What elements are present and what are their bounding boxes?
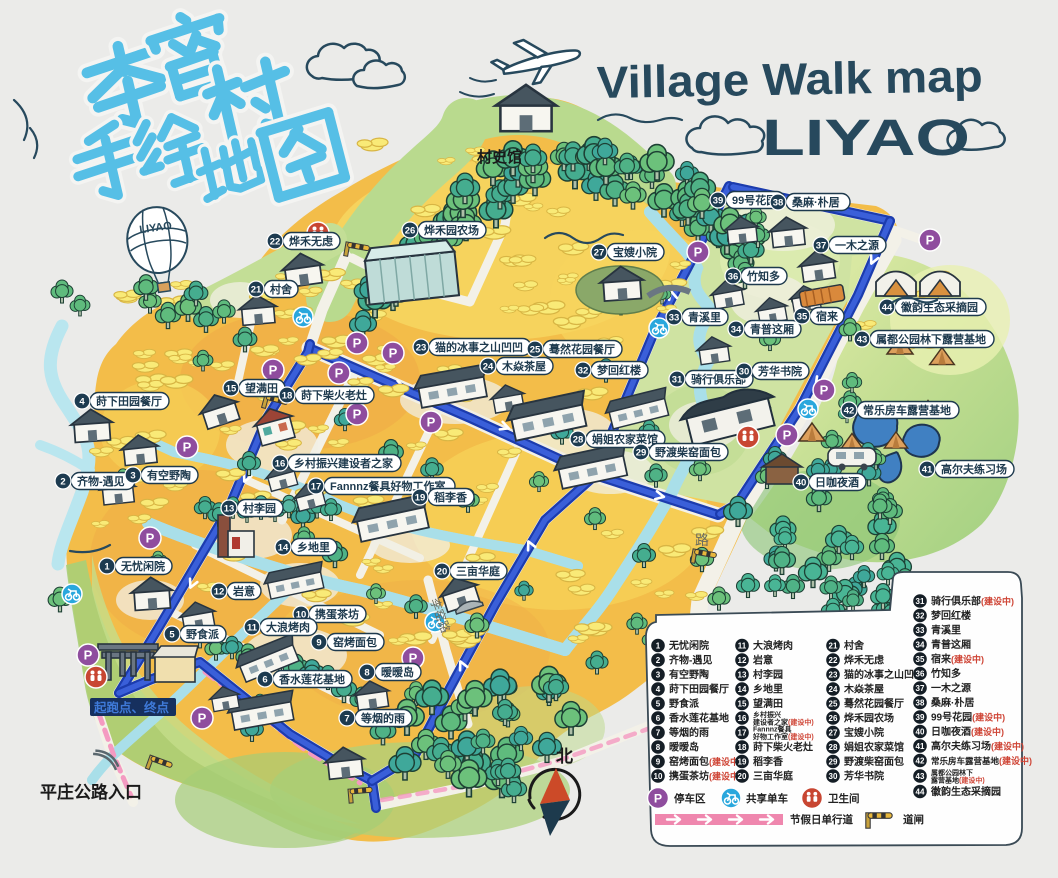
svg-text:三亩华庭: 三亩华庭 [753, 770, 794, 783]
svg-text:7: 7 [344, 714, 349, 725]
svg-text:40: 40 [916, 727, 925, 736]
svg-text:宝嫂小院: 宝嫂小院 [844, 726, 884, 739]
svg-text:6: 6 [262, 675, 267, 686]
svg-text:16: 16 [738, 714, 747, 723]
svg-text:14: 14 [278, 543, 289, 554]
svg-text:携蛋茶坊(建设中): 携蛋茶坊(建设中) [669, 770, 742, 783]
svg-text:岩意: 岩意 [232, 584, 255, 598]
svg-text:卫生间: 卫生间 [828, 792, 860, 805]
svg-text:Fannnz餐具好物工作室: Fannnz餐具好物工作室 [330, 479, 446, 493]
svg-text:99号花园(建设中): 99号花园(建设中) [931, 711, 1005, 724]
svg-text:竹知多: 竹知多 [930, 667, 961, 680]
svg-text:骑行俱乐部(建设中): 骑行俱乐部(建设中) [931, 595, 1014, 608]
svg-text:岩意: 岩意 [752, 654, 773, 667]
svg-text:17: 17 [738, 728, 747, 737]
svg-text:等烟的雨: 等烟的雨 [669, 726, 709, 739]
svg-text:30: 30 [829, 772, 838, 781]
svg-text:徽韵生态采摘园: 徽韵生态采摘园 [930, 785, 1001, 798]
svg-text:桑麻·朴居: 桑麻·朴居 [791, 195, 840, 209]
svg-text:29: 29 [829, 757, 838, 766]
svg-text:39: 39 [916, 713, 925, 722]
svg-text:宿来(建设中): 宿来(建设中) [931, 653, 984, 666]
svg-text:LIYAO: LIYAO [762, 109, 970, 166]
svg-text:有空野陶: 有空野陶 [147, 468, 191, 482]
svg-text:26: 26 [405, 226, 416, 237]
svg-text:P: P [654, 791, 662, 805]
svg-text:Fannnz餐具: Fannnz餐具 [753, 725, 792, 734]
svg-text:28: 28 [573, 435, 584, 446]
svg-text:31: 31 [672, 375, 683, 386]
svg-text:26: 26 [829, 714, 838, 723]
svg-text:23: 23 [829, 670, 838, 679]
svg-text:8: 8 [656, 743, 661, 752]
svg-text:等烟的雨: 等烟的雨 [360, 711, 405, 725]
svg-text:大浪烤肉: 大浪烤肉 [753, 639, 793, 652]
svg-text:平庄公路入口: 平庄公路入口 [40, 782, 142, 802]
svg-text:37: 37 [816, 241, 827, 252]
svg-text:34: 34 [731, 325, 742, 336]
svg-text:娟姐农家菜馆: 娟姐农家菜馆 [592, 432, 658, 446]
svg-text:烨禾园农场: 烨禾园农场 [424, 223, 479, 237]
svg-text:42: 42 [916, 756, 925, 765]
svg-text:携蛋茶坊: 携蛋茶坊 [315, 607, 359, 621]
svg-text:24: 24 [829, 685, 838, 694]
svg-text:烨禾无虑: 烨禾无虑 [289, 234, 333, 248]
svg-text:乡村振兴: 乡村振兴 [753, 710, 781, 719]
svg-text:2: 2 [656, 656, 661, 665]
svg-text:暧暧岛: 暧暧岛 [381, 665, 414, 679]
svg-text:31: 31 [916, 597, 925, 606]
svg-text:1: 1 [656, 641, 661, 650]
svg-text:竹知多: 竹知多 [746, 269, 780, 283]
svg-text:有空野陶: 有空野陶 [669, 668, 709, 681]
svg-text:无忧闲院: 无忧闲院 [120, 559, 165, 573]
svg-text:19: 19 [738, 757, 747, 766]
svg-text:三亩华庭: 三亩华庭 [456, 564, 500, 578]
svg-text:莳下柴火老灶: 莳下柴火老灶 [301, 388, 367, 402]
svg-text:娟姐农家菜馆: 娟姐农家菜馆 [844, 741, 904, 754]
svg-text:15: 15 [226, 384, 237, 395]
svg-text:莳下柴火老灶: 莳下柴火老灶 [753, 741, 813, 754]
svg-text:木焱茶屋: 木焱茶屋 [843, 683, 884, 696]
svg-text:村李园: 村李园 [753, 668, 783, 681]
svg-text:窑烤面包(建设中): 窑烤面包(建设中) [669, 755, 742, 768]
svg-text:节假日单行道: 节假日单行道 [790, 813, 853, 826]
svg-text:44: 44 [916, 787, 925, 796]
svg-text:27: 27 [829, 728, 838, 737]
svg-text:38: 38 [916, 698, 925, 707]
svg-text:1: 1 [104, 562, 110, 573]
svg-text:常乐房车露营基地: 常乐房车露营基地 [863, 403, 951, 417]
svg-text:20: 20 [738, 772, 747, 781]
svg-text:P: P [198, 711, 207, 726]
svg-text:27: 27 [594, 248, 605, 259]
svg-text:道闸: 道闸 [903, 813, 924, 826]
svg-text:25: 25 [829, 699, 838, 708]
svg-text:徽韵生态采摘园: 徽韵生态采摘园 [900, 300, 978, 314]
svg-text:37: 37 [916, 684, 925, 693]
svg-text:宿来: 宿来 [816, 309, 839, 323]
svg-text:高尔夫练习场(建设中): 高尔夫练习场(建设中) [931, 740, 1024, 753]
svg-text:6: 6 [656, 714, 661, 723]
svg-text:P: P [427, 415, 436, 430]
svg-text:青溪里: 青溪里 [688, 310, 721, 324]
svg-text:39: 39 [713, 196, 724, 207]
svg-text:22: 22 [829, 656, 838, 665]
svg-text:村舍: 村舍 [844, 639, 865, 652]
svg-text:12: 12 [738, 656, 747, 665]
svg-text:41: 41 [916, 742, 925, 751]
svg-text:28: 28 [829, 743, 838, 752]
svg-text:P: P [820, 383, 829, 398]
svg-text:19: 19 [415, 493, 426, 504]
svg-text:一木之源: 一木之源 [931, 682, 971, 695]
svg-text:43: 43 [916, 772, 925, 781]
svg-text:野渡柴窑面包: 野渡柴窑面包 [844, 755, 904, 768]
svg-text:44: 44 [882, 303, 893, 314]
svg-text:23: 23 [416, 343, 427, 354]
svg-text:P: P [335, 366, 344, 381]
svg-text:青普这厢: 青普这厢 [750, 322, 794, 336]
svg-text:野食派: 野食派 [186, 627, 220, 641]
svg-text:烨禾无虑: 烨禾无虑 [844, 654, 884, 667]
svg-text:21: 21 [829, 641, 838, 650]
svg-text:猫的冰事之山凹凹: 猫的冰事之山凹凹 [435, 340, 523, 354]
svg-text:9: 9 [316, 638, 321, 649]
svg-text:香水莲花基地: 香水莲花基地 [278, 672, 345, 686]
svg-text:乡村振兴建设者之家: 乡村振兴建设者之家 [294, 456, 394, 470]
svg-text:好物工作室(建设中): 好物工作室(建设中) [752, 732, 814, 741]
svg-text:9: 9 [656, 757, 661, 766]
svg-text:日咖夜酒: 日咖夜酒 [815, 475, 859, 489]
svg-text:窑烤面包: 窑烤面包 [333, 635, 377, 649]
svg-text:梦回红楼: 梦回红楼 [597, 363, 641, 377]
svg-text:日咖夜酒(建设中): 日咖夜酒(建设中) [931, 725, 1004, 738]
svg-text:露营基地(建设中): 露营基地(建设中) [931, 776, 985, 785]
svg-text:Village Walk map: Village Walk map [596, 50, 983, 108]
svg-text:7: 7 [656, 728, 661, 737]
svg-text:野渡柴窑面包: 野渡柴窑面包 [655, 445, 721, 459]
svg-text:青溪里: 青溪里 [931, 624, 961, 637]
svg-text:村李园: 村李园 [243, 501, 276, 515]
svg-text:36: 36 [728, 272, 739, 283]
svg-text:共享单车: 共享单车 [746, 792, 788, 805]
svg-text:芳华书院: 芳华书院 [758, 364, 802, 378]
svg-text:35: 35 [797, 312, 808, 323]
svg-text:P: P [783, 428, 792, 443]
svg-text:2: 2 [60, 477, 65, 488]
svg-text:暧暧岛: 暧暧岛 [669, 741, 699, 754]
svg-text:42: 42 [844, 406, 855, 417]
svg-text:无忧闲院: 无忧闲院 [668, 639, 709, 652]
svg-text:5: 5 [656, 699, 661, 708]
svg-text:建设者之家(建设中): 建设者之家(建设中) [753, 718, 814, 727]
svg-text:乡地里: 乡地里 [753, 683, 783, 696]
svg-text:8: 8 [364, 668, 369, 679]
svg-text:11: 11 [247, 623, 258, 634]
svg-text:29: 29 [636, 448, 647, 459]
svg-text:望满田: 望满田 [753, 697, 783, 710]
svg-text:40: 40 [796, 478, 807, 489]
svg-text:蓦然花园餐厅: 蓦然花园餐厅 [549, 342, 615, 356]
svg-text:32: 32 [916, 611, 925, 620]
svg-text:25: 25 [530, 345, 541, 356]
svg-text:17: 17 [311, 482, 322, 493]
svg-text:常乐房车露营基地(建设中): 常乐房车露营基地(建设中) [931, 755, 1032, 766]
svg-text:4: 4 [656, 685, 661, 694]
svg-text:大浪烤肉: 大浪烤肉 [266, 620, 310, 634]
svg-text:33: 33 [916, 626, 925, 635]
svg-text:15: 15 [738, 699, 747, 708]
svg-text:宝嫂小院: 宝嫂小院 [613, 245, 657, 259]
svg-text:蓦然花园餐厅: 蓦然花园餐厅 [843, 697, 904, 710]
svg-text:38: 38 [773, 198, 784, 209]
svg-text:4: 4 [79, 397, 85, 408]
svg-text:稻李香: 稻李香 [753, 755, 783, 768]
svg-text:11: 11 [738, 641, 747, 650]
svg-text:33: 33 [669, 313, 680, 324]
svg-text:莳下田园餐厅: 莳下田园餐厅 [96, 394, 162, 408]
svg-text:梦回红楼: 梦回红楼 [931, 609, 971, 622]
svg-text:18: 18 [282, 391, 293, 402]
svg-text:稻李香: 稻李香 [434, 490, 468, 504]
svg-text:43: 43 [857, 335, 868, 346]
svg-text:P: P [269, 363, 278, 378]
svg-text:望满田: 望满田 [245, 381, 278, 395]
svg-text:青普这厢: 青普这厢 [931, 638, 971, 651]
svg-text:13: 13 [224, 504, 235, 515]
svg-text:莳下田园餐厅: 莳下田园餐厅 [669, 683, 729, 696]
svg-text:一木之源: 一木之源 [835, 238, 879, 252]
svg-text:村舍: 村舍 [270, 282, 293, 296]
svg-text:属都公园林下露营基地: 属都公园林下露营基地 [876, 332, 986, 346]
svg-text:P: P [353, 407, 362, 422]
svg-text:3: 3 [656, 670, 661, 679]
svg-text:3: 3 [130, 471, 135, 482]
svg-text:P: P [146, 531, 155, 546]
svg-text:村史馆: 村史馆 [477, 148, 522, 166]
svg-text:41: 41 [922, 465, 933, 476]
svg-text:24: 24 [483, 362, 494, 373]
svg-text:野食派: 野食派 [669, 697, 700, 710]
svg-text:烨禾园农场: 烨禾园农场 [844, 712, 894, 725]
svg-text:14: 14 [738, 685, 747, 694]
svg-text:齐物-遇见: 齐物-遇见 [77, 474, 125, 488]
svg-text:木焱茶屋: 木焱茶屋 [501, 359, 546, 373]
svg-text:停车区: 停车区 [674, 792, 706, 805]
svg-text:P: P [84, 648, 93, 663]
svg-text:P: P [389, 346, 398, 361]
svg-text:属都公园林下: 属都公园林下 [931, 768, 973, 777]
svg-text:20: 20 [437, 567, 448, 578]
svg-text:高尔夫练习场: 高尔夫练习场 [941, 462, 1007, 476]
svg-text:10: 10 [654, 772, 663, 781]
svg-text:P: P [353, 336, 362, 351]
svg-text:香水莲花基地: 香水莲花基地 [669, 712, 729, 725]
svg-text:34: 34 [916, 640, 925, 649]
svg-text:P: P [926, 233, 935, 248]
svg-text:22: 22 [270, 237, 281, 248]
svg-text:30: 30 [739, 367, 750, 378]
svg-text:36: 36 [916, 669, 925, 678]
svg-text:猫的冰事之山凹凹: 猫的冰事之山凹凹 [844, 668, 924, 681]
svg-text:16: 16 [275, 459, 286, 470]
svg-text:P: P [183, 440, 192, 455]
svg-text:乡地里: 乡地里 [297, 540, 330, 554]
svg-text:桑麻·朴居: 桑麻·朴居 [930, 696, 974, 709]
svg-text:芳华书院: 芳华书院 [844, 770, 884, 783]
svg-text:路: 路 [695, 532, 709, 548]
svg-text:5: 5 [169, 630, 175, 641]
svg-text:32: 32 [578, 366, 589, 377]
svg-text:13: 13 [738, 670, 747, 679]
svg-text:起跑点、终点: 起跑点、终点 [93, 700, 170, 715]
svg-text:齐物-遇见: 齐物-遇见 [669, 654, 712, 667]
svg-text:12: 12 [214, 587, 225, 598]
svg-text:21: 21 [251, 285, 262, 296]
svg-text:18: 18 [738, 743, 747, 752]
svg-text:35: 35 [916, 655, 925, 664]
svg-text:北: 北 [556, 747, 573, 766]
svg-text:P: P [694, 245, 703, 260]
